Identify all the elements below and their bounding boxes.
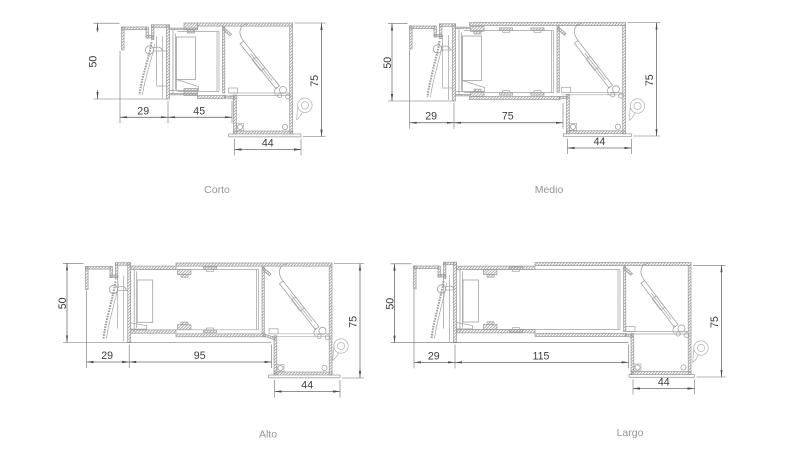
svg-text:50: 50 (57, 297, 69, 309)
svg-text:45: 45 (193, 105, 205, 117)
svg-text:95: 95 (194, 350, 206, 362)
svg-text:44: 44 (594, 136, 606, 148)
svg-text:44: 44 (301, 380, 313, 392)
svg-text:115: 115 (533, 350, 550, 362)
svg-text:75: 75 (309, 75, 321, 87)
svg-text:Largo: Largo (617, 427, 644, 439)
svg-text:Alto: Alto (259, 429, 277, 441)
svg-text:Medio: Medio (535, 184, 564, 196)
svg-text:29: 29 (101, 350, 113, 362)
svg-text:29: 29 (428, 350, 440, 362)
svg-text:75: 75 (644, 74, 656, 86)
svg-text:29: 29 (425, 111, 437, 123)
svg-text:44: 44 (658, 377, 670, 389)
svg-text:44: 44 (262, 138, 274, 150)
svg-text:50: 50 (385, 298, 397, 310)
svg-text:75: 75 (348, 316, 360, 328)
svg-text:50: 50 (88, 56, 100, 68)
svg-text:Corto: Corto (204, 184, 230, 196)
svg-text:29: 29 (137, 105, 149, 117)
svg-text:75: 75 (502, 111, 514, 123)
svg-text:75: 75 (709, 316, 721, 328)
svg-text:50: 50 (382, 57, 394, 69)
